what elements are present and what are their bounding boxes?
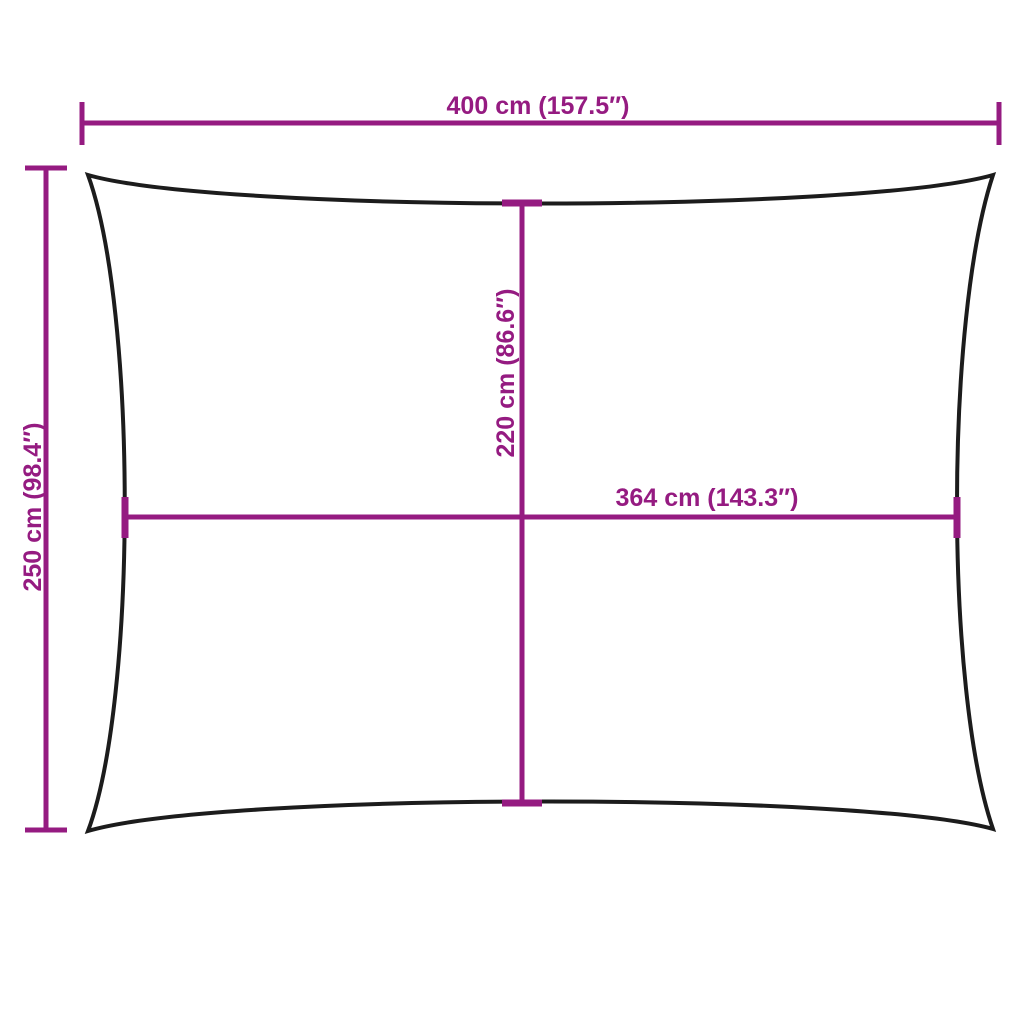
shade-sail-dimension-diagram: 400 cm (157.5″) 250 cm (98.4″) 220 cm (8…	[0, 0, 1024, 1024]
sail-outline	[88, 175, 993, 831]
label-overall-width: 400 cm (157.5″)	[447, 92, 630, 120]
diagram-canvas: 400 cm (157.5″) 250 cm (98.4″) 220 cm (8…	[0, 0, 1024, 1024]
label-inner-height: 220 cm (86.6″)	[492, 288, 520, 457]
label-inner-width: 364 cm (143.3″)	[616, 484, 799, 512]
label-overall-height: 250 cm (98.4″)	[19, 422, 47, 591]
